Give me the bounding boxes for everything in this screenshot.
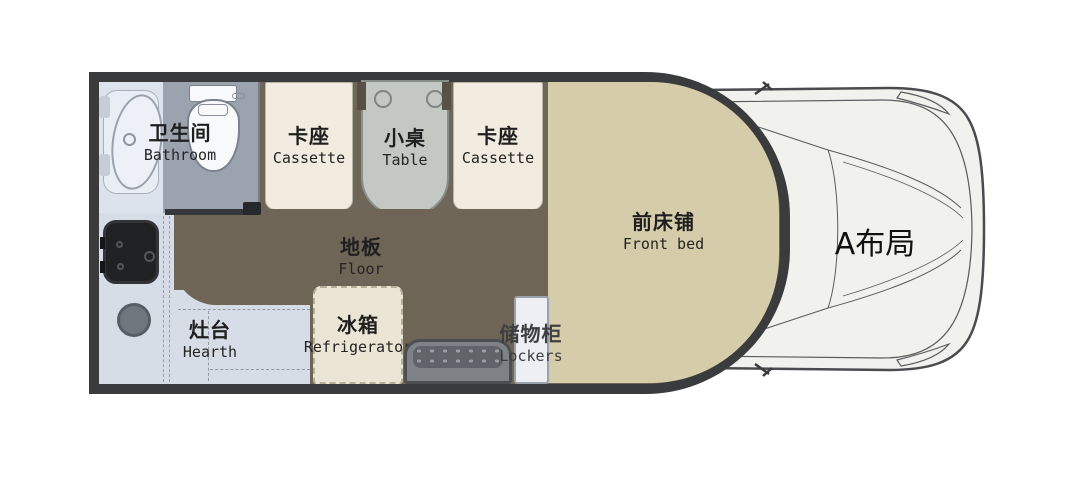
shower-shelf-icon — [99, 154, 110, 176]
lockers-cabinet — [514, 296, 549, 384]
step-tread-icon — [413, 346, 503, 368]
dinette-seat-right: 卡座 Cassette — [453, 82, 543, 210]
cup-holder-icon — [374, 90, 392, 108]
stove-hinge-icon — [100, 237, 105, 249]
stove-knob-icon — [144, 251, 155, 262]
stove-hinge-icon — [100, 261, 105, 273]
stove-knob-icon — [117, 263, 124, 270]
cassette-left-label-en: Cassette — [273, 148, 345, 169]
floor-label-zh: 地板 — [340, 235, 382, 259]
counter-seam-dashed — [210, 369, 310, 370]
sink-icon — [117, 303, 151, 337]
cassette-right-label-zh: 卡座 — [477, 124, 519, 148]
floor-area: 地板 Floor — [174, 209, 548, 305]
counter-seam-dashed — [169, 216, 170, 382]
front-bed-label-en: Front bed — [623, 234, 704, 255]
camper-floorplan: 地板 Floor 卫生间 Bathroom 卡座 Cassette 小桌 Tab… — [0, 0, 1080, 478]
bathroom-toilet-zone — [163, 82, 260, 213]
counter-seam-dashed — [163, 216, 164, 382]
table-mount-left — [357, 82, 366, 110]
stove-knob-icon — [116, 241, 123, 248]
table-label-zh: 小桌 — [384, 126, 426, 150]
layout-title: A布局 — [815, 219, 935, 263]
table-label-en: Table — [382, 150, 427, 171]
flush-button-icon — [232, 93, 245, 99]
shower-shelf-icon — [99, 96, 110, 118]
counter-seam-dashed — [178, 309, 310, 310]
bathroom-door-handle — [243, 202, 261, 215]
floor-label-en: Floor — [338, 259, 383, 280]
bathroom-shower-zone — [99, 82, 163, 213]
front-bed-area: 前床铺 Front bed — [548, 82, 779, 383]
entry-step-icon — [404, 339, 512, 384]
dinette-seat-left: 卡座 Cassette — [265, 82, 353, 210]
drain-icon — [123, 133, 136, 146]
counter-seam-dashed — [208, 311, 209, 381]
cassette-left-label-zh: 卡座 — [288, 124, 330, 148]
cassette-right-label-en: Cassette — [462, 148, 534, 169]
stove-icon — [103, 220, 159, 284]
table-mount-right — [442, 82, 451, 110]
toilet-seat-icon — [198, 104, 228, 116]
front-bed-label-zh: 前床铺 — [632, 210, 695, 234]
dinette-table: 小桌 Table — [361, 80, 449, 216]
